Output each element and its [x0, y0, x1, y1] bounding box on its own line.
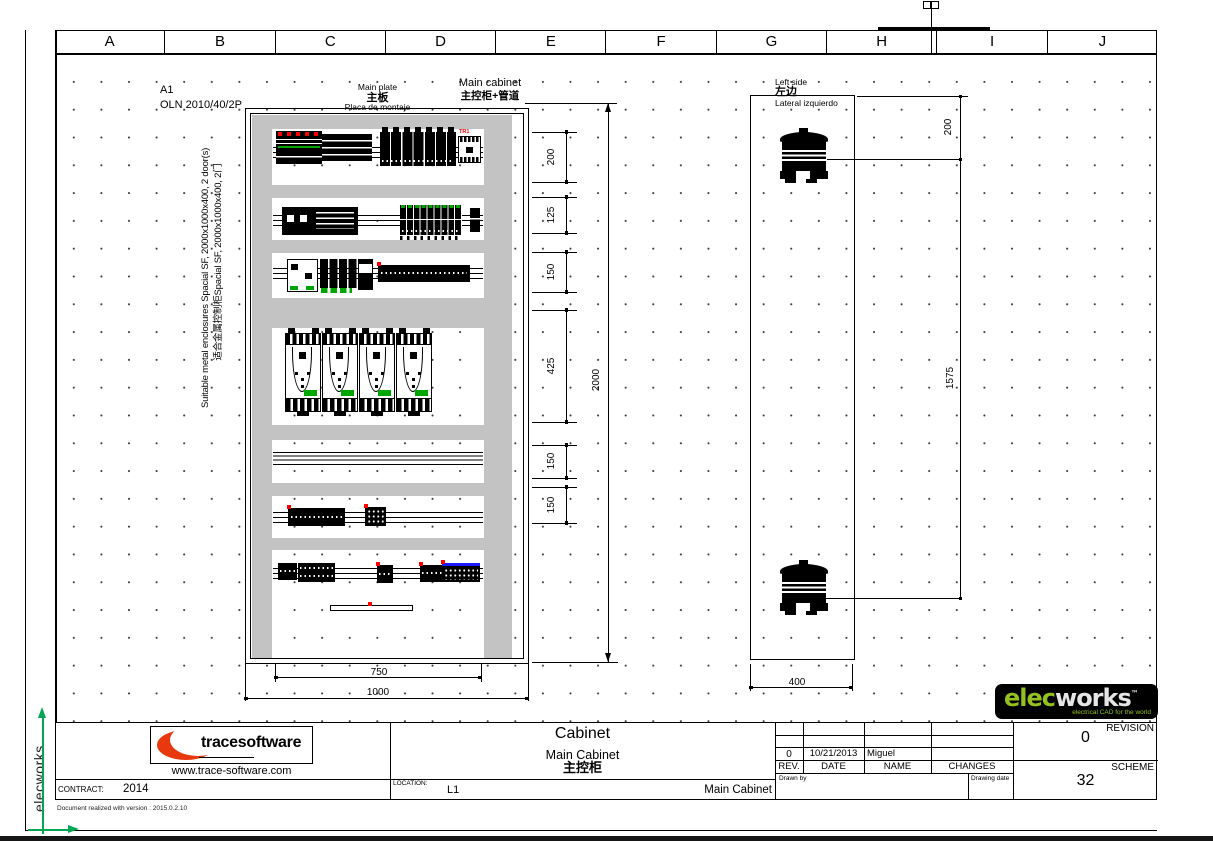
- frame-right-line: [1156, 30, 1158, 800]
- page-bottom-line: [25, 830, 1157, 831]
- cabinet-inner-outline: [250, 113, 524, 659]
- rev-header-rev: REV.: [775, 762, 803, 773]
- page-edge-line: [25, 30, 26, 831]
- dimension-tick: [565, 250, 569, 254]
- cabinet-name: Main Cabinet: [640, 784, 772, 797]
- dimension-value: 200: [943, 105, 955, 149]
- extension-line: [275, 664, 276, 682]
- dimension-tick: [959, 597, 963, 601]
- y-axis-arrow: [42, 716, 44, 834]
- dimension-value: 150: [546, 483, 558, 527]
- extension-line: [525, 103, 617, 104]
- elecworks-logo: elecworks™ electrical CAD for the world: [995, 684, 1158, 719]
- dimension-tick: [959, 158, 963, 162]
- location-value: L1: [447, 784, 459, 797]
- elecworks-wordmark: elecworks™: [1004, 684, 1139, 712]
- logo-underline: [199, 757, 254, 758]
- rev-header-name: NAME: [864, 762, 931, 773]
- cabinet-label-zh: 主控柜+管道: [445, 90, 535, 102]
- drawing-subtitle-zh: 主控柜: [390, 761, 775, 776]
- x-axis-arrow: [28, 829, 70, 831]
- x-axis-arrowhead-icon: [68, 825, 79, 833]
- dimension-value: 150: [546, 439, 558, 483]
- rev-header-date: DATE: [803, 762, 864, 773]
- company-name-light: software: [238, 734, 301, 751]
- fan-body: [782, 573, 826, 604]
- revision-value: 0: [1013, 729, 1158, 747]
- scheme-value: 32: [1013, 772, 1158, 790]
- frame-left-line: [55, 30, 57, 800]
- fold-mark-square: [923, 1, 931, 9]
- dimension-tick: [565, 485, 569, 489]
- fan-base: [780, 603, 828, 611]
- drawn-by-label: Drawn by: [779, 775, 806, 782]
- dimension-tick: [959, 95, 963, 99]
- dimension-line: [566, 197, 567, 233]
- window-bottom-edge: [0, 836, 1213, 841]
- column-ruler: A B C D E F G H I J: [55, 30, 1157, 55]
- dimension-value: 200: [546, 135, 558, 179]
- company-logo: tracesoftware: [150, 726, 313, 764]
- title-block-divider: [775, 722, 776, 800]
- dimension-line: [566, 132, 567, 182]
- dimension-arrow: [605, 653, 611, 662]
- elecworks-tagline: electrical CAD for the world: [1072, 709, 1151, 716]
- side-label-es: Lateral izquierdo: [775, 99, 838, 109]
- dimension-value: 2000: [591, 358, 603, 402]
- fold-mark-line: [931, 9, 932, 55]
- dimension-value: 400: [767, 677, 827, 689]
- enclosure-note-zh: 适合金属控制柜Spacial SF, 2000x1000x400, 2门: [213, 116, 226, 408]
- enclosure-note: Suitable metal enclosures Spacial SF, 20…: [200, 116, 225, 408]
- ruler-column-g: G: [716, 31, 826, 53]
- title-block-divider: [1013, 760, 1158, 761]
- fan-feet: [785, 611, 796, 615]
- rev-entry-name: Miguel: [867, 749, 895, 760]
- extension-line: [481, 664, 482, 682]
- rev-table-line: [968, 773, 969, 800]
- contract-value: 2014: [123, 783, 149, 796]
- ruler-column-j: J: [1047, 31, 1157, 53]
- company-name: tracesoftware: [201, 734, 301, 752]
- dimension-tick: [749, 686, 753, 690]
- cabinet-fan: [779, 560, 829, 615]
- dimension-line: [566, 252, 567, 292]
- dimension-tick: [274, 676, 278, 680]
- dimension-value: 125: [546, 193, 558, 237]
- drawing-title: Cabinet: [390, 725, 775, 743]
- dimension-value: 750: [357, 667, 401, 679]
- fan-body: [782, 141, 826, 172]
- dimension-tick: [525, 697, 529, 701]
- fan-feet: [785, 179, 796, 183]
- ruler-column-c: C: [275, 31, 385, 53]
- fold-mark-bar: [878, 27, 990, 31]
- rev-entry-date: 10/21/2013: [803, 749, 864, 760]
- dimension-value: 150: [546, 250, 558, 294]
- y-axis-arrowhead-icon: [38, 707, 46, 718]
- dimension-tick: [565, 130, 569, 134]
- extension-line: [532, 132, 577, 133]
- ruler-column-i: I: [936, 31, 1046, 53]
- fold-mark-square: [931, 1, 939, 9]
- ruler-column-a: A: [55, 31, 164, 53]
- ruler-column-f: F: [605, 31, 715, 53]
- location-label: LOCATION:: [393, 780, 428, 787]
- contract-label: CONTRACT:: [58, 785, 104, 794]
- ruler-column-b: B: [164, 31, 274, 53]
- dimension-tick: [478, 676, 482, 680]
- leader-line: [824, 598, 961, 599]
- dimension-line: [960, 96, 961, 598]
- plate-label-es: Placa de montaje: [330, 103, 425, 113]
- dimension-value: 425: [546, 344, 558, 388]
- extension-line: [857, 96, 968, 97]
- dimension-tick: [565, 308, 569, 312]
- dimension-tick: [244, 697, 248, 701]
- enclosure-note-en: Suitable metal enclosures Spacial SF, 20…: [200, 116, 213, 408]
- cabinet-fan: [779, 128, 829, 183]
- dimension-line: [566, 310, 567, 422]
- trademark-symbol: ™: [1131, 689, 1139, 698]
- ruler-column-h: H: [826, 31, 936, 53]
- drawing-sheet: A B C D E F G H I J A1 OLN 2010/40/2P Su…: [0, 0, 1213, 841]
- dimension-tick: [849, 686, 853, 690]
- rev-table-line: [775, 735, 1013, 736]
- extension-line: [528, 664, 529, 701]
- dimension-value: 1575: [945, 356, 957, 400]
- dimension-line: [566, 487, 567, 523]
- ruler-column-d: D: [385, 31, 495, 53]
- rev-entry-rev: 0: [775, 749, 803, 761]
- extension-line: [532, 662, 618, 663]
- rev-table-line: [775, 773, 1013, 774]
- dimension-arrow: [605, 103, 611, 112]
- elecworks-elec: elec: [1004, 684, 1055, 712]
- sheet-format-note: A1: [160, 84, 173, 97]
- cabinet-label-en: Main cabinet: [445, 77, 535, 90]
- dimension-line: [608, 104, 609, 662]
- rev-header-changes: CHANGES: [931, 762, 1013, 773]
- dimension-value: 1000: [356, 687, 400, 699]
- company-website: www.trace-software.com: [150, 765, 313, 778]
- dimension-line: [566, 445, 567, 478]
- drawing-date-label: Drawing date: [971, 775, 1009, 782]
- elecworks-works: works: [1055, 684, 1131, 712]
- extension-line: [245, 664, 246, 701]
- sidebar-brand-text: elecworks: [31, 745, 47, 812]
- dimension-tick: [565, 195, 569, 199]
- company-name-bold: trace: [201, 734, 238, 751]
- fan-base: [780, 171, 828, 179]
- leader-line: [827, 159, 961, 160]
- dimension-tick: [565, 443, 569, 447]
- version-note: Document realized with version : 2015.0.…: [57, 805, 187, 812]
- extension-line: [532, 310, 577, 311]
- enclosure-reference: OLN 2010/40/2P: [160, 99, 242, 112]
- ruler-column-e: E: [495, 31, 605, 53]
